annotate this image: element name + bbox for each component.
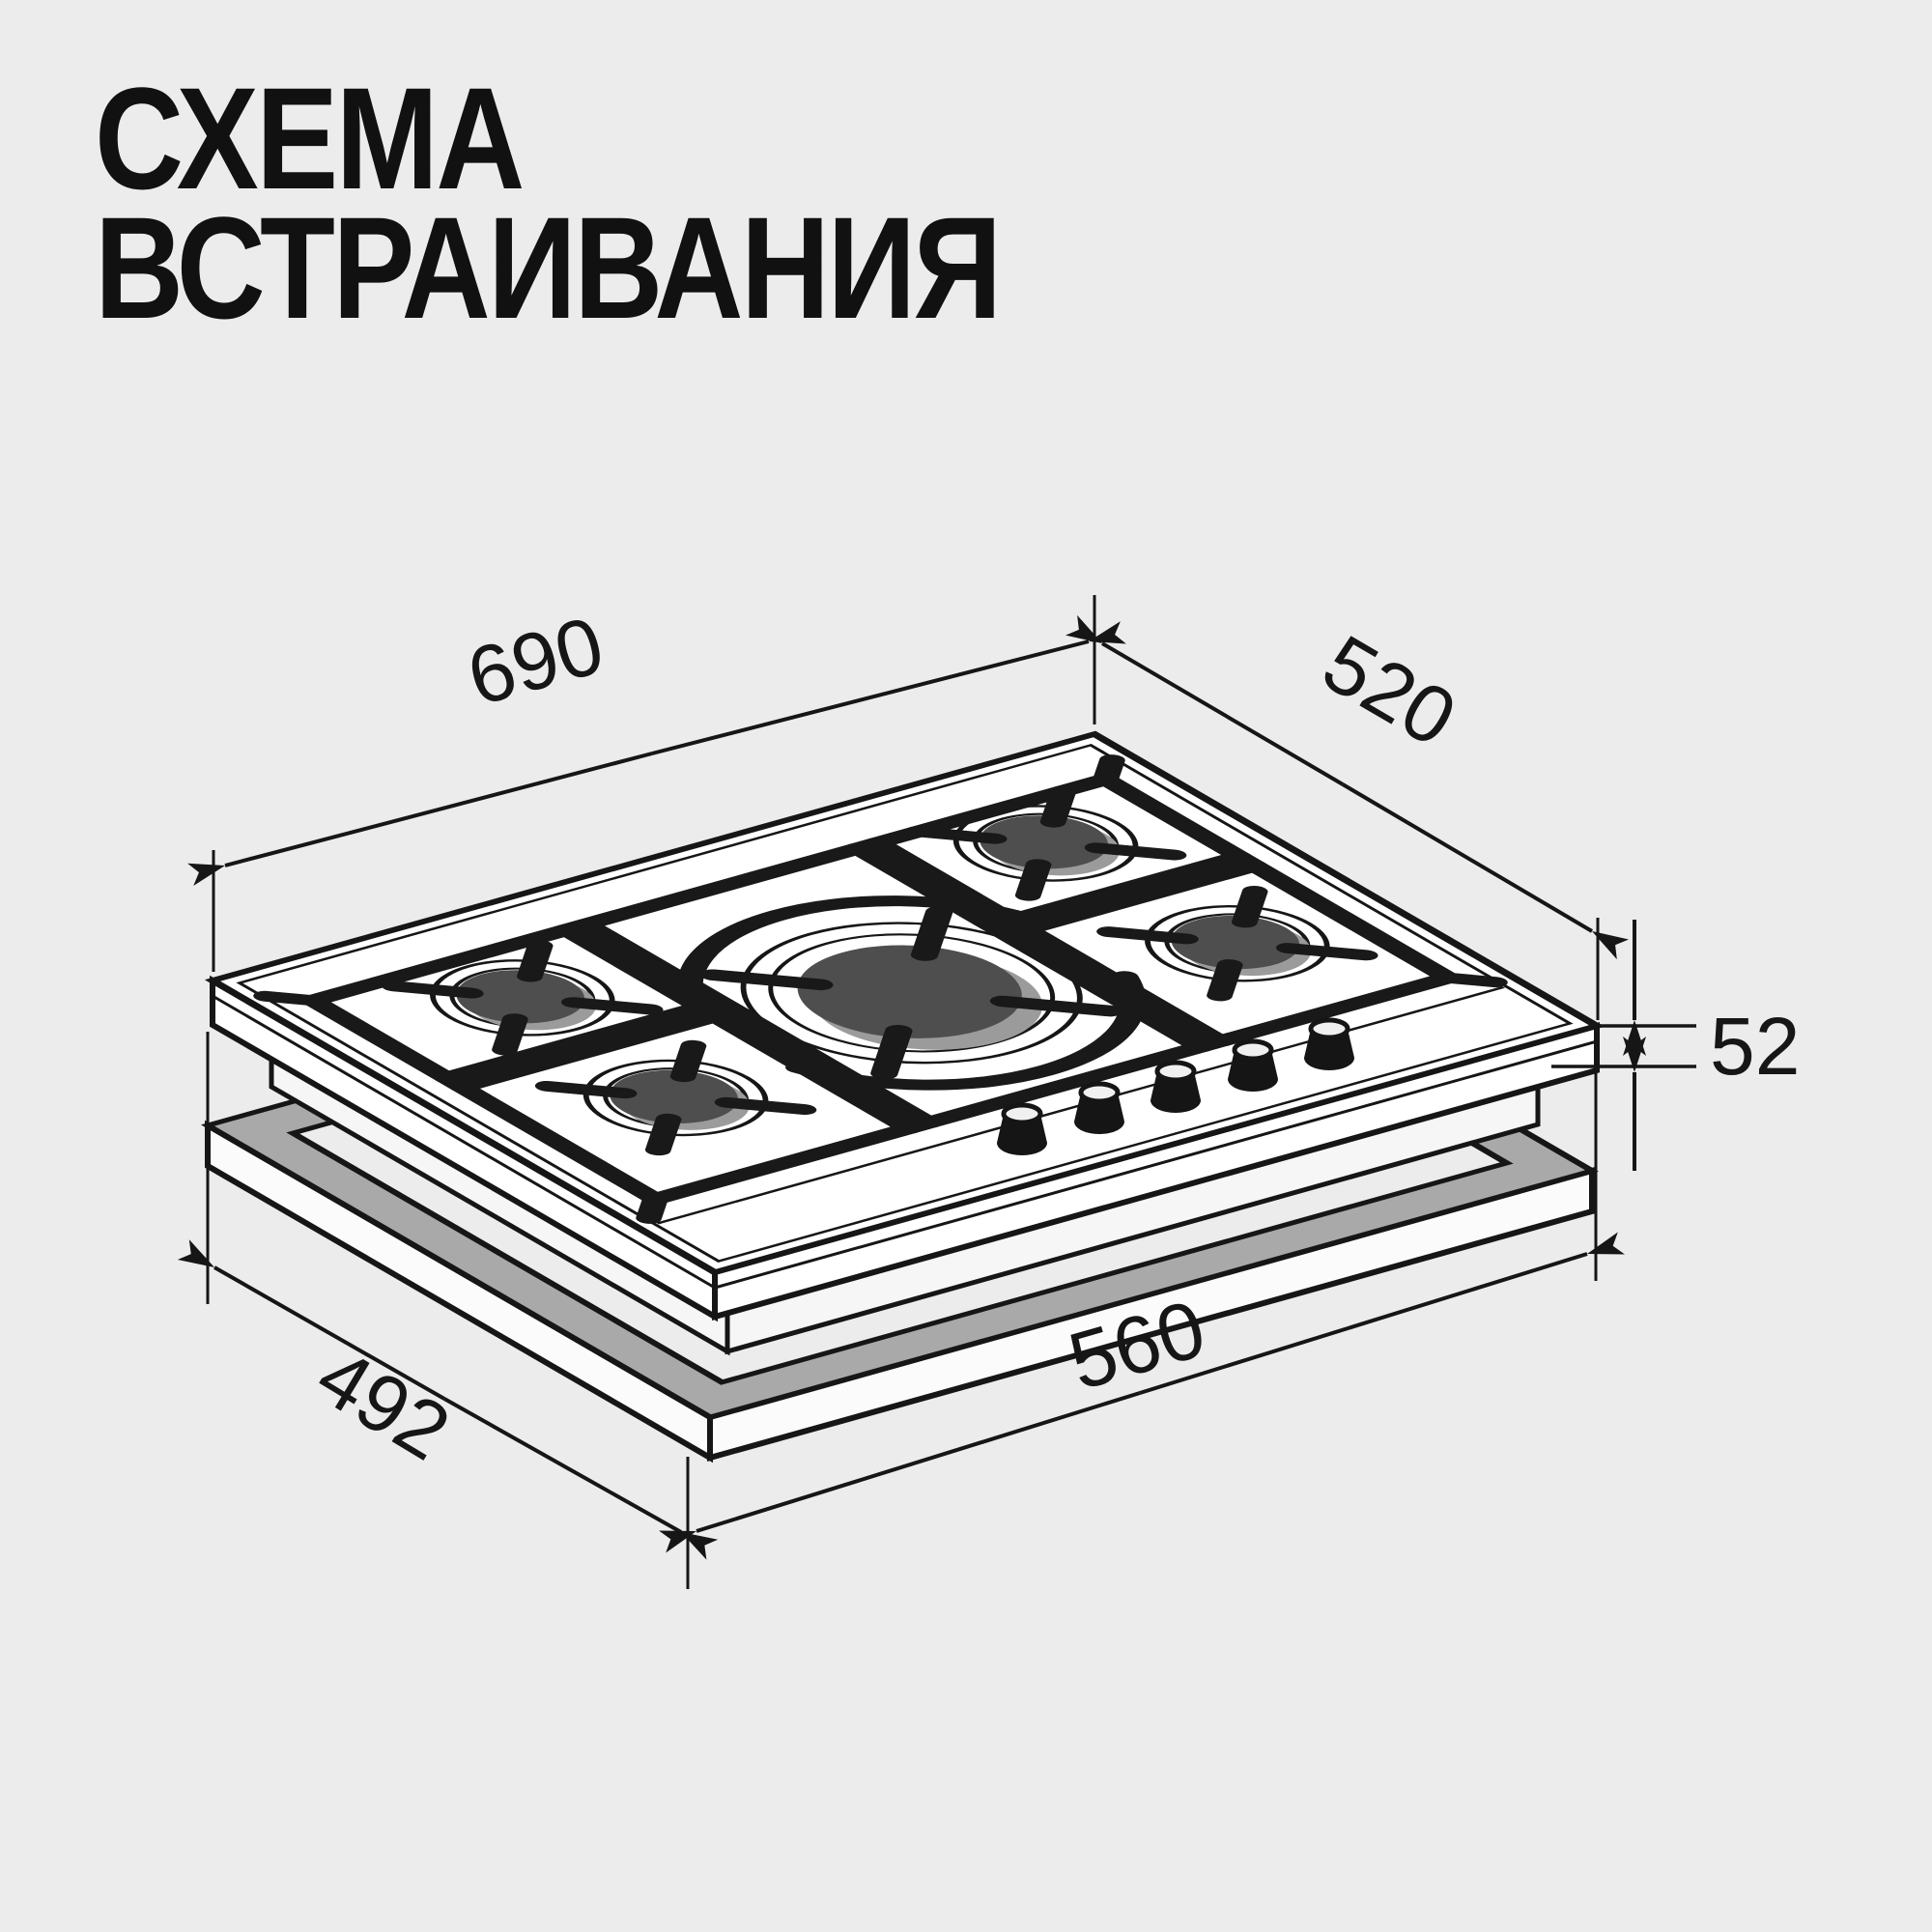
dim-label-520: 520	[1308, 617, 1470, 764]
dimension-line	[652, 641, 1089, 753]
page: { "title": { "line1": "СХЕМА", "line2": …	[0, 0, 1932, 1932]
knob-2	[1074, 1084, 1124, 1134]
knob-5	[1304, 1020, 1354, 1070]
knob-1	[997, 1105, 1047, 1155]
dim-label-492: 492	[302, 1330, 466, 1478]
dimension-cutout-depth	[214, 1267, 688, 1589]
dim-label-690: 690	[458, 599, 612, 723]
dim-label-52: 52	[1710, 1001, 1800, 1092]
installation-diagram: 690 520 52 492 560	[0, 0, 1932, 1932]
dimension-line	[225, 753, 652, 866]
knob-3	[1151, 1063, 1201, 1113]
knob-4	[1228, 1041, 1278, 1092]
